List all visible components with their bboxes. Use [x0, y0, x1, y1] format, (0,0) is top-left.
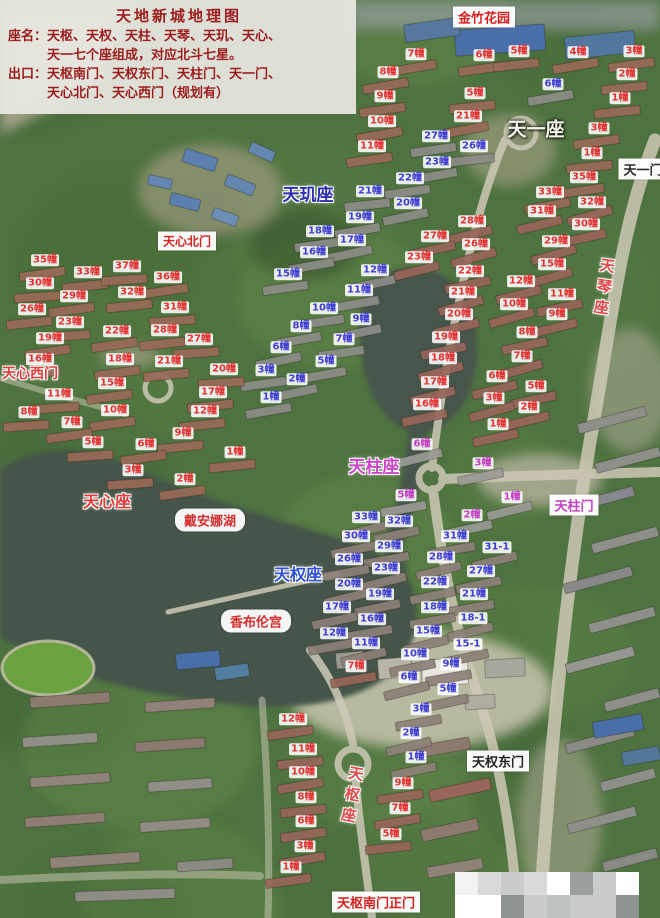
building-label: 22幢 [396, 172, 424, 184]
building-label: 3幢 [295, 840, 316, 852]
building-label: 3幢 [589, 122, 610, 134]
building-label: 11幢 [352, 637, 380, 649]
building-label: 20幢 [335, 578, 363, 590]
building-label: 17幢 [323, 601, 351, 613]
building-label: 10幢 [401, 648, 429, 660]
building-label: 17幢 [199, 386, 227, 398]
building-label: 4幢 [568, 46, 589, 58]
building-label: 7幢 [62, 416, 83, 428]
building-label: 1幢 [502, 491, 523, 503]
building-label: 29幢 [542, 235, 570, 247]
mosaic-cell [478, 895, 501, 918]
area-label-tianxin-north-gate: 天心北门 [158, 232, 216, 251]
legend-zuoming-line2: 天一七个座组成，对应北斗七星。 [47, 48, 242, 63]
building-label: 10幢 [310, 302, 338, 314]
building-label: 5幢 [381, 828, 402, 840]
map-title: 天地新城地理图 [8, 5, 350, 26]
building-label: 1幢 [281, 861, 302, 873]
map-legend: 天地新城地理图 座名： 天枢、天权、天柱、天琴、天玑、天心、 天一七个座组成，对… [0, 0, 356, 114]
building-label: 19幢 [346, 211, 374, 223]
building-label: 5幢 [83, 436, 104, 448]
building-label: 33幢 [74, 266, 102, 278]
building-label: 5幢 [509, 45, 530, 57]
building-label: 23幢 [56, 316, 84, 328]
building-label: 28幢 [427, 551, 455, 563]
area-label-tianshu-zuo: 天枢座 [336, 764, 368, 830]
building-label: 21幢 [356, 185, 384, 197]
building-label: 6幢 [412, 438, 433, 450]
building-label: 32幢 [578, 196, 606, 208]
building-label: 22幢 [103, 325, 131, 337]
building-label: 33幢 [536, 186, 564, 198]
building-label: 23幢 [405, 251, 433, 263]
building-label: 8幢 [296, 791, 317, 803]
building-label: 21幢 [454, 110, 482, 122]
building-label: 11幢 [289, 743, 317, 755]
building-label: 6幢 [399, 671, 420, 683]
building-label: 11幢 [358, 140, 386, 152]
building-label: 22幢 [421, 576, 449, 588]
area-label-diana-lake: 戴安娜湖 [175, 509, 245, 532]
building-label: 9幢 [393, 777, 414, 789]
building-label: 15幢 [98, 377, 126, 389]
mosaic-cell [547, 895, 570, 918]
building-label: 28幢 [458, 215, 486, 227]
mosaic-cell [593, 872, 616, 895]
building-label: 30幢 [572, 218, 600, 230]
building-label: 21幢 [460, 588, 488, 600]
building-label: 7幢 [346, 660, 367, 672]
building-label: 3幢 [473, 457, 494, 469]
building-label: 29幢 [375, 540, 403, 552]
area-label-tianxin-zuo: 天心座 [83, 488, 131, 512]
building-label: 3幢 [256, 364, 277, 376]
building-label: 7幢 [334, 333, 355, 345]
building-label: 20幢 [394, 197, 422, 209]
mosaic-watermark [455, 872, 660, 918]
building-label: 6幢 [271, 341, 292, 353]
building-label: 18幢 [429, 352, 457, 364]
legend-zuoming-line1: 天枢、天权、天柱、天琴、天玑、天心、 [47, 29, 281, 44]
building-label: 12幢 [507, 275, 535, 287]
building-label: 9幢 [375, 90, 396, 102]
building-label: 27幢 [421, 230, 449, 242]
building-label: 12幢 [279, 713, 307, 725]
building-label: 5幢 [465, 87, 486, 99]
building-label: 27幢 [467, 565, 495, 577]
legend-zuoming-key: 座名： [8, 28, 47, 66]
legend-chukou-key: 出口： [8, 66, 47, 104]
building-label: 7幢 [390, 802, 411, 814]
building-label: 1幢 [225, 446, 246, 458]
building-label: 11幢 [45, 388, 73, 400]
building-label: 22幢 [456, 265, 484, 277]
building-label: 3幢 [123, 464, 144, 476]
building-label: 18幢 [421, 601, 449, 613]
building-label: 17幢 [338, 234, 366, 246]
building-label: 1幢 [406, 751, 427, 763]
building-label: 29幢 [60, 290, 88, 302]
building-label: 12幢 [361, 264, 389, 276]
building-label: 2幢 [401, 727, 422, 739]
building-label: 6幢 [487, 370, 508, 382]
building-label: 1幢 [261, 391, 282, 403]
building-label: 6幢 [543, 78, 564, 90]
building-label: 32幢 [385, 515, 413, 527]
area-label-tianqin-zuo: 天琴座 [589, 256, 619, 321]
mosaic-cell [547, 872, 570, 895]
mosaic-cell [501, 872, 524, 895]
building-label: 31幢 [161, 301, 189, 313]
legend-chukou-line1: 天枢南门、天权东门、天柱门、天一门、 [47, 67, 281, 82]
building-label: 27幢 [422, 130, 450, 142]
building-label: 20幢 [210, 363, 238, 375]
area-label-tianji-zuo: 天玑座 [283, 181, 334, 206]
building-label: 35幢 [31, 254, 59, 266]
building-label: 15幢 [274, 268, 302, 280]
building-label: 19幢 [36, 332, 64, 344]
building-label: 10幢 [368, 115, 396, 127]
building-label: 2幢 [175, 473, 196, 485]
mosaic-cell [524, 872, 547, 895]
building-label: 3幢 [624, 45, 645, 57]
building-label: 2幢 [617, 68, 638, 80]
area-label-tianquan-zuo: 天权座 [274, 561, 322, 585]
building-label: 23幢 [423, 156, 451, 168]
building-label: 6幢 [296, 815, 317, 827]
building-label: 37幢 [113, 260, 141, 272]
building-label: 2幢 [462, 509, 483, 521]
building-label: 9幢 [351, 313, 372, 325]
building-label: 8幢 [517, 326, 538, 338]
building-label: 10幢 [289, 766, 317, 778]
building-label: 32幢 [118, 286, 146, 298]
label-layer: 7幢6幢5幢4幢3幢2幢8幢9幢1幢10幢11幢5幢21幢3幢1幢33幢35幢6… [0, 0, 660, 918]
area-label-tianyi-zuo: 天一座 [507, 115, 564, 142]
building-label: 16幢 [413, 398, 441, 410]
building-label: 5幢 [526, 380, 547, 392]
building-label: 1幢 [610, 92, 631, 104]
mosaic-cell [570, 872, 593, 895]
legend-zuoming-value: 天枢、天权、天柱、天琴、天玑、天心、 天一七个座组成，对应北斗七星。 [47, 28, 350, 66]
building-label: 9幢 [173, 427, 194, 439]
building-label: 11幢 [548, 288, 576, 300]
building-label: 20幢 [445, 308, 473, 320]
building-label: 10幢 [101, 404, 129, 416]
building-label: 30幢 [342, 530, 370, 542]
mosaic-cell [455, 895, 478, 918]
building-label: 16幢 [358, 613, 386, 625]
building-label: 9幢 [547, 308, 568, 320]
building-label: 21幢 [449, 286, 477, 298]
building-label: 26幢 [18, 303, 46, 315]
building-label: 16幢 [300, 246, 328, 258]
building-label: 3幢 [484, 392, 505, 404]
building-label: 12幢 [320, 627, 348, 639]
legend-chukou-line2: 天心北门、天心西门（规划有） [47, 86, 229, 101]
building-label: 5幢 [396, 489, 417, 501]
building-label: 6幢 [474, 49, 495, 61]
building-label: 31-1 [482, 541, 511, 553]
building-label: 3幢 [411, 703, 432, 715]
mosaic-cell [524, 895, 547, 918]
building-label: 2幢 [519, 401, 540, 413]
building-label: 33幢 [352, 511, 380, 523]
building-label: 18幢 [106, 353, 134, 365]
building-label: 28幢 [151, 324, 179, 336]
building-label: 8幢 [378, 66, 399, 78]
mosaic-cell [501, 895, 524, 918]
building-label: 35幢 [570, 171, 598, 183]
building-label: 10幢 [500, 298, 528, 310]
mosaic-cell [616, 895, 639, 918]
building-label: 8幢 [19, 406, 40, 418]
building-label: 2幢 [287, 373, 308, 385]
building-label: 26幢 [462, 238, 490, 250]
building-label: 7幢 [406, 48, 427, 60]
building-label: 15幢 [538, 258, 566, 270]
building-label: 23幢 [372, 562, 400, 574]
building-label: 26幢 [335, 553, 363, 565]
area-label-tianzhu-zuo: 天柱座 [349, 453, 400, 478]
area-label-tianxin-west-gate: 天心西门 [2, 363, 58, 383]
area-label-chambord-palace: 香布伦宫 [221, 610, 291, 633]
building-label: 6幢 [136, 438, 157, 450]
building-label: 18-1 [458, 612, 487, 624]
area-label-tianyi-gate: 天一门 [618, 159, 660, 180]
legend-chukou-value: 天枢南门、天权东门、天柱门、天一门、 天心北门、天心西门（规划有） [47, 66, 350, 104]
building-label: 5幢 [438, 683, 459, 695]
area-label-tianshu-south-gate: 天枢南门正门 [332, 892, 420, 913]
building-label: 8幢 [291, 320, 312, 332]
building-label: 11幢 [345, 284, 373, 296]
mosaic-cell [455, 872, 478, 895]
building-label: 12幢 [191, 405, 219, 417]
mosaic-cell [616, 872, 639, 895]
building-label: 21幢 [155, 355, 183, 367]
area-label-tianquan-east-gate: 天权东门 [467, 751, 529, 772]
building-label: 17幢 [421, 376, 449, 388]
legend-chukou-row: 出口： 天枢南门、天权东门、天柱门、天一门、 天心北门、天心西门（规划有） [8, 66, 350, 104]
building-label: 1幢 [488, 418, 509, 430]
area-label-tianzhu-gate: 天柱门 [549, 495, 598, 516]
building-label: 31幢 [441, 530, 469, 542]
building-label: 36幢 [154, 271, 182, 283]
building-label: 5幢 [316, 355, 337, 367]
building-label: 27幢 [185, 333, 213, 345]
building-label: 7幢 [512, 350, 533, 362]
area-label-jinzhu-garden: 金竹花园 [453, 7, 515, 28]
mosaic-cell [478, 872, 501, 895]
legend-zuoming-row: 座名： 天枢、天权、天柱、天琴、天玑、天心、 天一七个座组成，对应北斗七星。 [8, 28, 350, 66]
building-label: 19幢 [366, 588, 394, 600]
building-label: 9幢 [441, 658, 462, 670]
building-label: 30幢 [26, 277, 54, 289]
building-label: 15-1 [453, 638, 482, 650]
building-label: 19幢 [432, 331, 460, 343]
building-label: 31幢 [528, 205, 556, 217]
building-label: 1幢 [582, 147, 603, 159]
building-label: 15幢 [414, 625, 442, 637]
mosaic-cell [593, 895, 616, 918]
mosaic-cell [570, 895, 593, 918]
satellite-map: 天地新城地理图 座名： 天枢、天权、天柱、天琴、天玑、天心、 天一七个座组成，对… [0, 0, 660, 918]
building-label: 26幢 [460, 140, 488, 152]
building-label: 18幢 [306, 225, 334, 237]
